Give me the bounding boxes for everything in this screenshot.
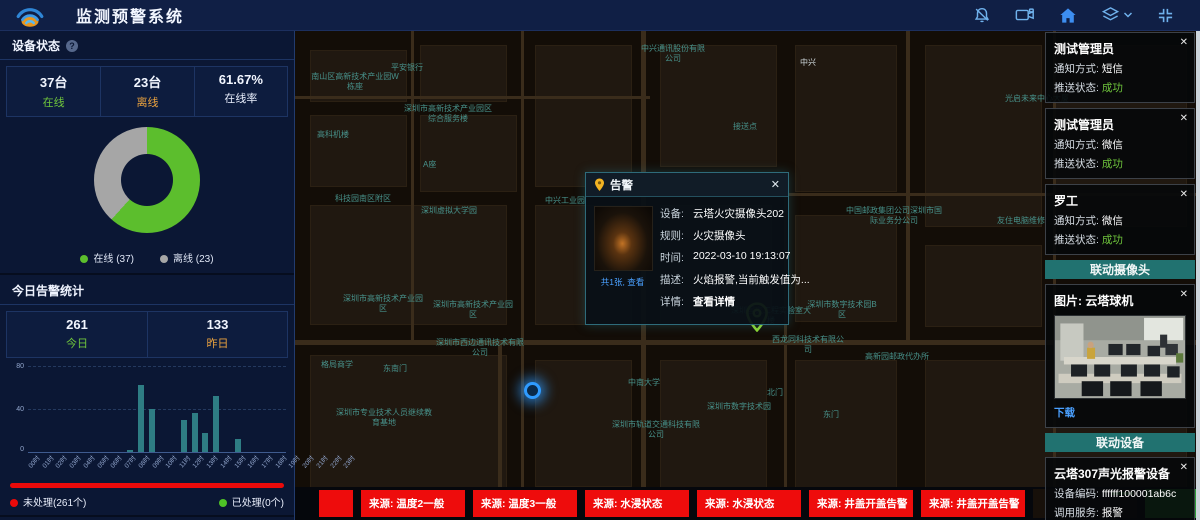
donut-legend: 在线 (37) 离线 (23) xyxy=(0,250,294,265)
header-toolbar xyxy=(973,6,1174,24)
camera-snapshot-image[interactable] xyxy=(1054,315,1186,399)
page-title: 监测预警系统 xyxy=(76,3,184,27)
today-alarm-title: 今日告警统计 xyxy=(12,282,84,299)
today-bar-chart: 80 40 0 00时01时02时03时04时05时06时07时08时09时10… xyxy=(8,366,286,479)
map-label: 友住电脑维修 xyxy=(997,216,1045,226)
alert-row-time: 时间: 2022-03-10 19:13:07 xyxy=(660,250,810,265)
linked-camera-card[interactable]: ✕ 图片: 云塔球机 xyxy=(1045,284,1195,428)
view-detail-link[interactable]: 查看详情 xyxy=(693,294,735,309)
ticker-items: 来源: 温度2一般来源: 温度3一般来源: 水浸状态来源: 水浸状态来源: 井盖… xyxy=(361,490,1025,517)
today-bar-plot xyxy=(28,366,286,453)
bar-slot xyxy=(232,366,243,452)
bar-slot xyxy=(125,366,136,452)
popup-close-icon[interactable]: ✕ xyxy=(771,178,780,191)
map-block xyxy=(925,245,1042,327)
today-alarm-panel: 今日告警统计 261 今日 133 昨日 80 40 0 xyxy=(0,273,294,515)
map-block xyxy=(535,45,632,187)
alert-ticker-card[interactable]: 来源: 温度3一般 xyxy=(473,490,577,517)
map-label: 中兴通讯股份有限公司 xyxy=(641,44,705,65)
bar xyxy=(235,439,241,452)
bar-slot xyxy=(179,366,190,452)
bar-slot xyxy=(254,366,265,452)
bar-slot xyxy=(60,366,71,452)
device-donut xyxy=(94,127,200,233)
notification-card[interactable]: ✕ 测试管理员 通知方式: 微信 推送状态: 成功 xyxy=(1045,108,1195,179)
stat-offline: 23台 离线 xyxy=(100,67,193,116)
alarm-pin-icon xyxy=(594,178,605,192)
notification-card[interactable]: ✕ 测试管理员 通知方式: 短信 推送状态: 成功 xyxy=(1045,32,1195,103)
month-alarm-panel: 本月告警统计 763 1146 xyxy=(0,515,294,520)
linked-camera-header[interactable]: 联动摄像头 xyxy=(1045,260,1195,279)
unhandled-label: 未处理(261个) xyxy=(10,494,86,509)
map-label: 深圳市高新技术产业园区 xyxy=(433,300,513,321)
bar xyxy=(138,385,144,452)
alert-popup-header: 告警 ✕ xyxy=(586,173,788,197)
today-alarm-grid: 261 今日 133 昨日 xyxy=(6,311,288,358)
legend-online[interactable]: 在线 (37) xyxy=(80,250,134,265)
close-icon[interactable]: ✕ xyxy=(1180,189,1188,200)
unhandled-progress-bar xyxy=(10,483,284,488)
download-link[interactable]: 下载 xyxy=(1054,405,1075,420)
bar xyxy=(213,396,219,452)
map-label: 深圳市数字技术园 xyxy=(683,402,795,412)
left-sidebar: 设备状态 ? 37台 在线 23台 离线 61.67% 在线率 xyxy=(0,30,295,520)
map-label: 南山区高新技术产业园W栋座 xyxy=(311,72,399,93)
map-device-dot[interactable] xyxy=(524,382,541,399)
help-icon[interactable]: ? xyxy=(66,40,78,52)
alert-snapshot-caption[interactable]: 共1张, 查看 xyxy=(594,276,651,288)
map-block xyxy=(795,360,897,492)
map-label: 中国邮政集团公司深圳市国际业务分公司 xyxy=(845,206,943,227)
close-icon[interactable]: ✕ xyxy=(1180,37,1188,48)
device-status-grid: 37台 在线 23台 离线 61.67% 在线率 xyxy=(6,66,288,117)
bar-slot xyxy=(28,366,39,452)
right-panel-scrollbar[interactable] xyxy=(1196,30,1200,520)
alert-ticker-card[interactable]: 来源: 温度2一般 xyxy=(361,490,465,517)
map-label: 深圳市数字技术园B区 xyxy=(805,300,879,321)
bar-slot xyxy=(211,366,222,452)
linked-device-header[interactable]: 联动设备 xyxy=(1045,433,1195,452)
app-header: 监测预警系统 xyxy=(0,0,1200,31)
bar-slot xyxy=(275,366,286,452)
app: 监测预警系统 xyxy=(0,0,1200,520)
map-label: 深圳虚拟大学园 xyxy=(393,206,505,216)
legend-offline[interactable]: 离线 (23) xyxy=(160,250,214,265)
handled-label: 已处理(0个) xyxy=(219,494,284,509)
map-label: 深圳市专业技术人员继续教育基地 xyxy=(333,408,435,429)
alarm-progress: 未处理(261个) 已处理(0个) xyxy=(10,483,284,515)
bar xyxy=(202,433,208,452)
stat-online-rate: 61.67% 在线率 xyxy=(194,67,287,116)
map-label: 中南大学 xyxy=(628,378,660,388)
right-panel: ✕ 测试管理员 通知方式: 短信 推送状态: 成功 ✕ 测试管理员 通知方式: … xyxy=(1045,32,1195,520)
bar-slot xyxy=(50,366,61,452)
stat-yesterday: 133 昨日 xyxy=(147,312,287,357)
map-label: 西龙同科技术有限公司 xyxy=(771,335,845,356)
alert-ticker-card[interactable]: 来源: 水浸状态 xyxy=(697,490,801,517)
map-label: 高科机楼 xyxy=(317,130,349,140)
bar-slot xyxy=(265,366,276,452)
bar-slot xyxy=(93,366,104,452)
map-road xyxy=(521,30,524,520)
bar-slot xyxy=(168,366,179,452)
map-label: 科技园南区附区 xyxy=(307,194,419,204)
bar-slot xyxy=(157,366,168,452)
map-label: 高新园邮政代办所 xyxy=(841,352,953,362)
alert-popup: 告警 ✕ 共1张, 查看 设备: 云塔火灾摄像头202 规则: 火灾摄像头 xyxy=(585,172,789,325)
stat-online: 37台 在线 xyxy=(7,67,100,116)
map-label: 深圳市轨道交通科技有限公司 xyxy=(611,420,701,441)
map-label: 深圳市高新技术产业园区 xyxy=(343,294,423,315)
map-label: 北门 xyxy=(767,388,783,398)
alert-popup-body: 共1张, 查看 设备: 云塔火灾摄像头202 规则: 火灾摄像头 时间: 202… xyxy=(586,197,788,324)
bar-slot xyxy=(200,366,211,452)
map-label: 深圳市高新技术产业园区综合服务楼 xyxy=(401,104,495,125)
home-icon[interactable] xyxy=(1059,7,1077,24)
bar-slot xyxy=(71,366,82,452)
fullscreen-icon[interactable] xyxy=(1157,7,1174,24)
map-block xyxy=(925,45,1042,227)
alert-ticker-card[interactable]: 来源: 井盖开盖告警 xyxy=(809,490,913,517)
map-road xyxy=(295,96,650,99)
map-road xyxy=(906,30,910,342)
bar xyxy=(181,420,187,452)
bar-slot xyxy=(82,366,93,452)
bar-slot xyxy=(103,366,114,452)
video-camera-icon[interactable] xyxy=(1015,7,1035,23)
bar-slot xyxy=(39,366,50,452)
map-label: 中兴 xyxy=(800,58,816,68)
bar-slot xyxy=(189,366,200,452)
map-label: 格局商学 xyxy=(321,360,353,370)
app-logo-icon xyxy=(14,3,46,28)
stat-today: 261 今日 xyxy=(7,312,147,357)
linked-device-card[interactable]: ✕ 云塔307声光报警设备 设备编码: ffffff100001ab6c 调用服… xyxy=(1045,457,1195,520)
alert-row-rule: 规则: 火灾摄像头 xyxy=(660,228,810,243)
alert-popup-title: 告警 xyxy=(610,177,633,193)
device-status-panel: 设备状态 ? 37台 在线 23台 离线 61.67% 在线率 xyxy=(0,30,294,273)
device-donut-chart: 在线 (37) 离线 (23) xyxy=(0,117,294,273)
notification-card[interactable]: ✕ 罗工 通知方式: 微信 推送状态: 成功 xyxy=(1045,184,1195,255)
alert-ticker-card-partial[interactable] xyxy=(319,490,353,517)
bar-chart-yaxis: 80 40 0 xyxy=(8,366,28,452)
bar-slot xyxy=(222,366,233,452)
map-block xyxy=(310,115,407,187)
alert-snapshot-image[interactable] xyxy=(594,206,653,271)
bar-slot xyxy=(146,366,157,452)
close-icon[interactable]: ✕ xyxy=(1180,462,1188,473)
bar-slot xyxy=(114,366,125,452)
alert-ticker-card[interactable]: 来源: 井盖开盖告警 xyxy=(921,490,1025,517)
bar xyxy=(149,409,155,452)
map-label: 东南门 xyxy=(383,364,407,374)
map-label: A座 xyxy=(423,160,436,170)
bell-off-icon[interactable] xyxy=(973,6,991,24)
bar-slot xyxy=(136,366,147,452)
alert-row-detail: 详情: 查看详情 xyxy=(660,294,810,309)
map-label: 接送点 xyxy=(733,122,757,132)
today-bar-xlabels: 00时01时02时03时04时05时06时07时08时09时10时11时12时1… xyxy=(8,455,286,479)
close-icon[interactable]: ✕ xyxy=(1180,113,1188,124)
close-icon[interactable]: ✕ xyxy=(1180,289,1188,300)
device-status-title: 设备状态 xyxy=(12,37,60,54)
map-block xyxy=(420,115,517,192)
alert-row-desc: 描述: 火焰报警,当前触发值为... xyxy=(660,272,810,287)
alert-row-device: 设备: 云塔火灾摄像头202 xyxy=(660,206,810,221)
bar xyxy=(192,413,198,452)
map-label: 中兴工业园 xyxy=(545,196,585,206)
alert-ticker-card[interactable]: 来源: 水浸状态 xyxy=(585,490,689,517)
map-label: 深圳市西边通讯技术有限公司 xyxy=(435,338,525,359)
map-label: 东门 xyxy=(823,410,839,420)
map-block xyxy=(420,45,507,102)
layers-icon[interactable] xyxy=(1101,6,1133,24)
bar-slot xyxy=(243,366,254,452)
